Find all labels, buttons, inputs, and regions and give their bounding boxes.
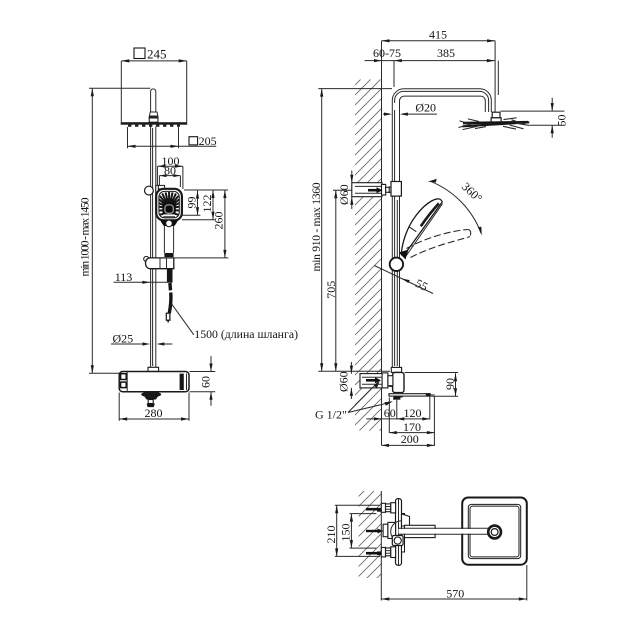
svg-text:90: 90 <box>443 378 457 390</box>
svg-text:60: 60 <box>198 376 212 388</box>
svg-text:50: 50 <box>555 115 569 127</box>
svg-text:60: 60 <box>384 406 396 420</box>
svg-text:Ø20: Ø20 <box>415 101 436 115</box>
svg-text:280: 280 <box>145 406 163 420</box>
svg-text:150: 150 <box>339 524 353 542</box>
svg-text:122: 122 <box>200 195 214 213</box>
svg-text:210: 210 <box>324 526 338 544</box>
svg-text:260: 260 <box>212 212 226 230</box>
svg-text:200: 200 <box>401 432 419 446</box>
svg-text:Ø60: Ø60 <box>337 184 351 205</box>
svg-text:Ø60: Ø60 <box>337 371 351 392</box>
svg-text:205: 205 <box>199 134 217 148</box>
svg-text:min 1000 - max 1450: min 1000 - max 1450 <box>79 197 92 276</box>
svg-text:1500 (длина шланга): 1500 (длина шланга) <box>194 327 298 341</box>
svg-text:G 1/2": G 1/2" <box>315 407 347 421</box>
svg-text:99: 99 <box>184 197 198 209</box>
svg-text:415: 415 <box>429 27 447 41</box>
svg-text:245: 245 <box>147 47 167 62</box>
svg-text:113: 113 <box>115 270 133 284</box>
svg-text:120: 120 <box>404 406 422 420</box>
svg-text:Ø25: Ø25 <box>113 331 134 345</box>
svg-text:570: 570 <box>446 587 464 601</box>
svg-text:385: 385 <box>437 46 455 60</box>
svg-text:60-75: 60-75 <box>373 46 401 60</box>
